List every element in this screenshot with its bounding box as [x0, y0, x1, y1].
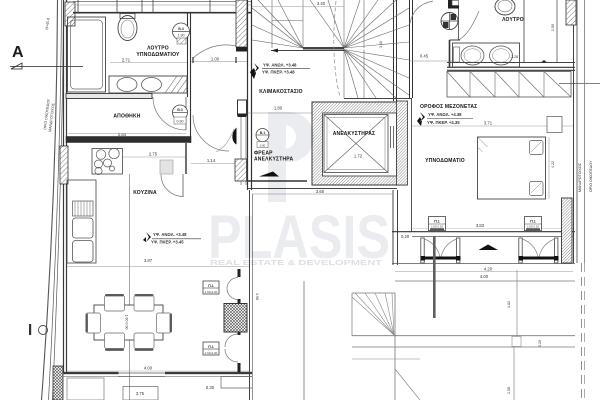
- svg-text:Π.1: Π.1: [208, 284, 214, 288]
- svg-text:0.90: 0.90: [260, 143, 266, 147]
- svg-text:3.83: 3.83: [476, 223, 485, 228]
- svg-text:ΥΨ. ΠΚΕΡ. +4.35: ΥΨ. ΠΚΕΡ. +4.35: [427, 120, 460, 125]
- svg-text:3.10: 3.10: [379, 41, 383, 48]
- svg-text:ΚΟΥΖΙΝΑ: ΚΟΥΖΙΝΑ: [133, 190, 157, 196]
- svg-text:4.22: 4.22: [551, 161, 555, 168]
- svg-text:3.71: 3.71: [484, 121, 493, 126]
- svg-text:ΟΡΙΟ ΟΙΚΟΠΕΔOΥ: ΟΡΙΟ ΟΙΚΟΠΕΔOΥ: [589, 160, 593, 192]
- svg-text:ΥΨ. ΑΝΩΛ. +4.38: ΥΨ. ΑΝΩΛ. +4.38: [428, 112, 462, 117]
- svg-text:Π.1: Π.1: [434, 220, 440, 224]
- svg-text:2.71: 2.71: [122, 58, 131, 63]
- svg-text:REAL ESTATE & DEVELOPMENT: REAL ESTATE & DEVELOPMENT: [210, 258, 383, 267]
- svg-text:4.00: 4.00: [144, 366, 153, 371]
- svg-text:1.08: 1.08: [507, 387, 511, 394]
- svg-text:1.60-2.20: 1.60-2.20: [431, 225, 443, 229]
- svg-text:ΟΡΟΦΟΣ ΜΕΖΟΝΕΤΑΣ: ΟΡΟΦΟΣ ΜΕΖΟΝΕΤΑΣ: [420, 104, 477, 110]
- svg-text:Β.4: Β.4: [178, 27, 184, 31]
- svg-text:ΑΝΕΛΚΥΣΤΗΡΑΣ: ΑΝΕΛΚΥΣΤΗΡΑΣ: [333, 131, 375, 137]
- svg-text:0.45: 0.45: [420, 54, 429, 59]
- svg-text:0.20: 0.20: [401, 234, 410, 239]
- svg-text:4.20: 4.20: [484, 267, 493, 272]
- svg-text:1.80: 1.80: [274, 106, 283, 111]
- svg-text:ΜΑΝΔΡOΤΟΙΧOΣ: ΜΑΝΔΡOΤΟΙΧOΣ: [578, 162, 582, 192]
- svg-text:-3.28: -3.28: [510, 55, 518, 59]
- svg-text:ΚΛΙΜΑΚΟΣΤΑΣΙΟ: ΚΛΙΜΑΚΟΣΤΑΣΙΟ: [259, 89, 303, 95]
- svg-text:4.00: 4.00: [480, 274, 489, 279]
- svg-text:ΥΨ. ΑΝΩΛ. +3.48: ΥΨ. ΑΝΩΛ. +3.48: [153, 232, 187, 237]
- svg-text:ΛΟΥΤΡΟ: ΛΟΥΤΡΟ: [502, 17, 524, 23]
- svg-text:Π.1: Π.1: [530, 220, 536, 224]
- svg-text:0.90: 0.90: [177, 120, 184, 124]
- svg-text:0.30: 0.30: [206, 385, 215, 390]
- svg-text:ΥΠΝΟΔΩΜΑΤΙΟ: ΥΠΝΟΔΩΜΑΤΙΟ: [425, 158, 465, 164]
- svg-text:ΥΨ. ΠΚΕΡ. +3.48: ΥΨ. ΠΚΕΡ. +3.48: [262, 70, 295, 75]
- svg-text:ΛΟΥΤΡΟ: ΛΟΥΤΡΟ: [147, 46, 169, 52]
- svg-text:4.98: 4.98: [255, 293, 259, 300]
- svg-text:0.20: 0.20: [538, 340, 542, 347]
- svg-text:1.72: 1.72: [354, 154, 363, 159]
- svg-text:2.64: 2.64: [118, 132, 127, 137]
- svg-text:3.87: 3.87: [144, 258, 153, 263]
- svg-text:1.90: 1.90: [178, 34, 185, 38]
- svg-text:Β.3: Β.3: [177, 108, 183, 112]
- svg-text:A: A: [12, 44, 24, 61]
- svg-text:1.14: 1.14: [207, 158, 216, 163]
- svg-text:ΥΨ. ΑΝΩΛ. +3.48: ΥΨ. ΑΝΩΛ. +3.48: [263, 63, 297, 68]
- svg-text:3.40: 3.40: [317, 1, 326, 6]
- svg-text:3.75: 3.75: [136, 391, 145, 396]
- svg-text:1.00: 1.00: [211, 57, 220, 62]
- svg-text:Π.1: Π.1: [208, 345, 214, 349]
- svg-text:1.82: 1.82: [507, 301, 511, 308]
- svg-text:1.60-2.20: 1.60-2.20: [527, 225, 539, 229]
- svg-text:3.60: 3.60: [316, 189, 325, 194]
- svg-text:1.60-2.20: 1.60-2.20: [205, 351, 218, 355]
- svg-text:1.50: 1.50: [551, 24, 555, 31]
- svg-text:1.60-2.20: 1.60-2.20: [205, 290, 218, 294]
- svg-text:ΥΠΝΟΔΩΜΑΤΙΟΥ: ΥΠΝΟΔΩΜΑΤΙΟΥ: [136, 52, 180, 58]
- svg-text:Β.1: Β.1: [260, 131, 266, 135]
- svg-text:2.75: 2.75: [149, 152, 158, 157]
- svg-text:ΑΠΟΘΗΚΗ: ΑΠΟΘΗΚΗ: [113, 114, 140, 120]
- svg-text:ΥΨ. ΠΚΕΡ. +3.45: ΥΨ. ΠΚΕΡ. +3.45: [151, 240, 184, 245]
- svg-text:1.60 0.90: 1.60 0.90: [125, 315, 129, 330]
